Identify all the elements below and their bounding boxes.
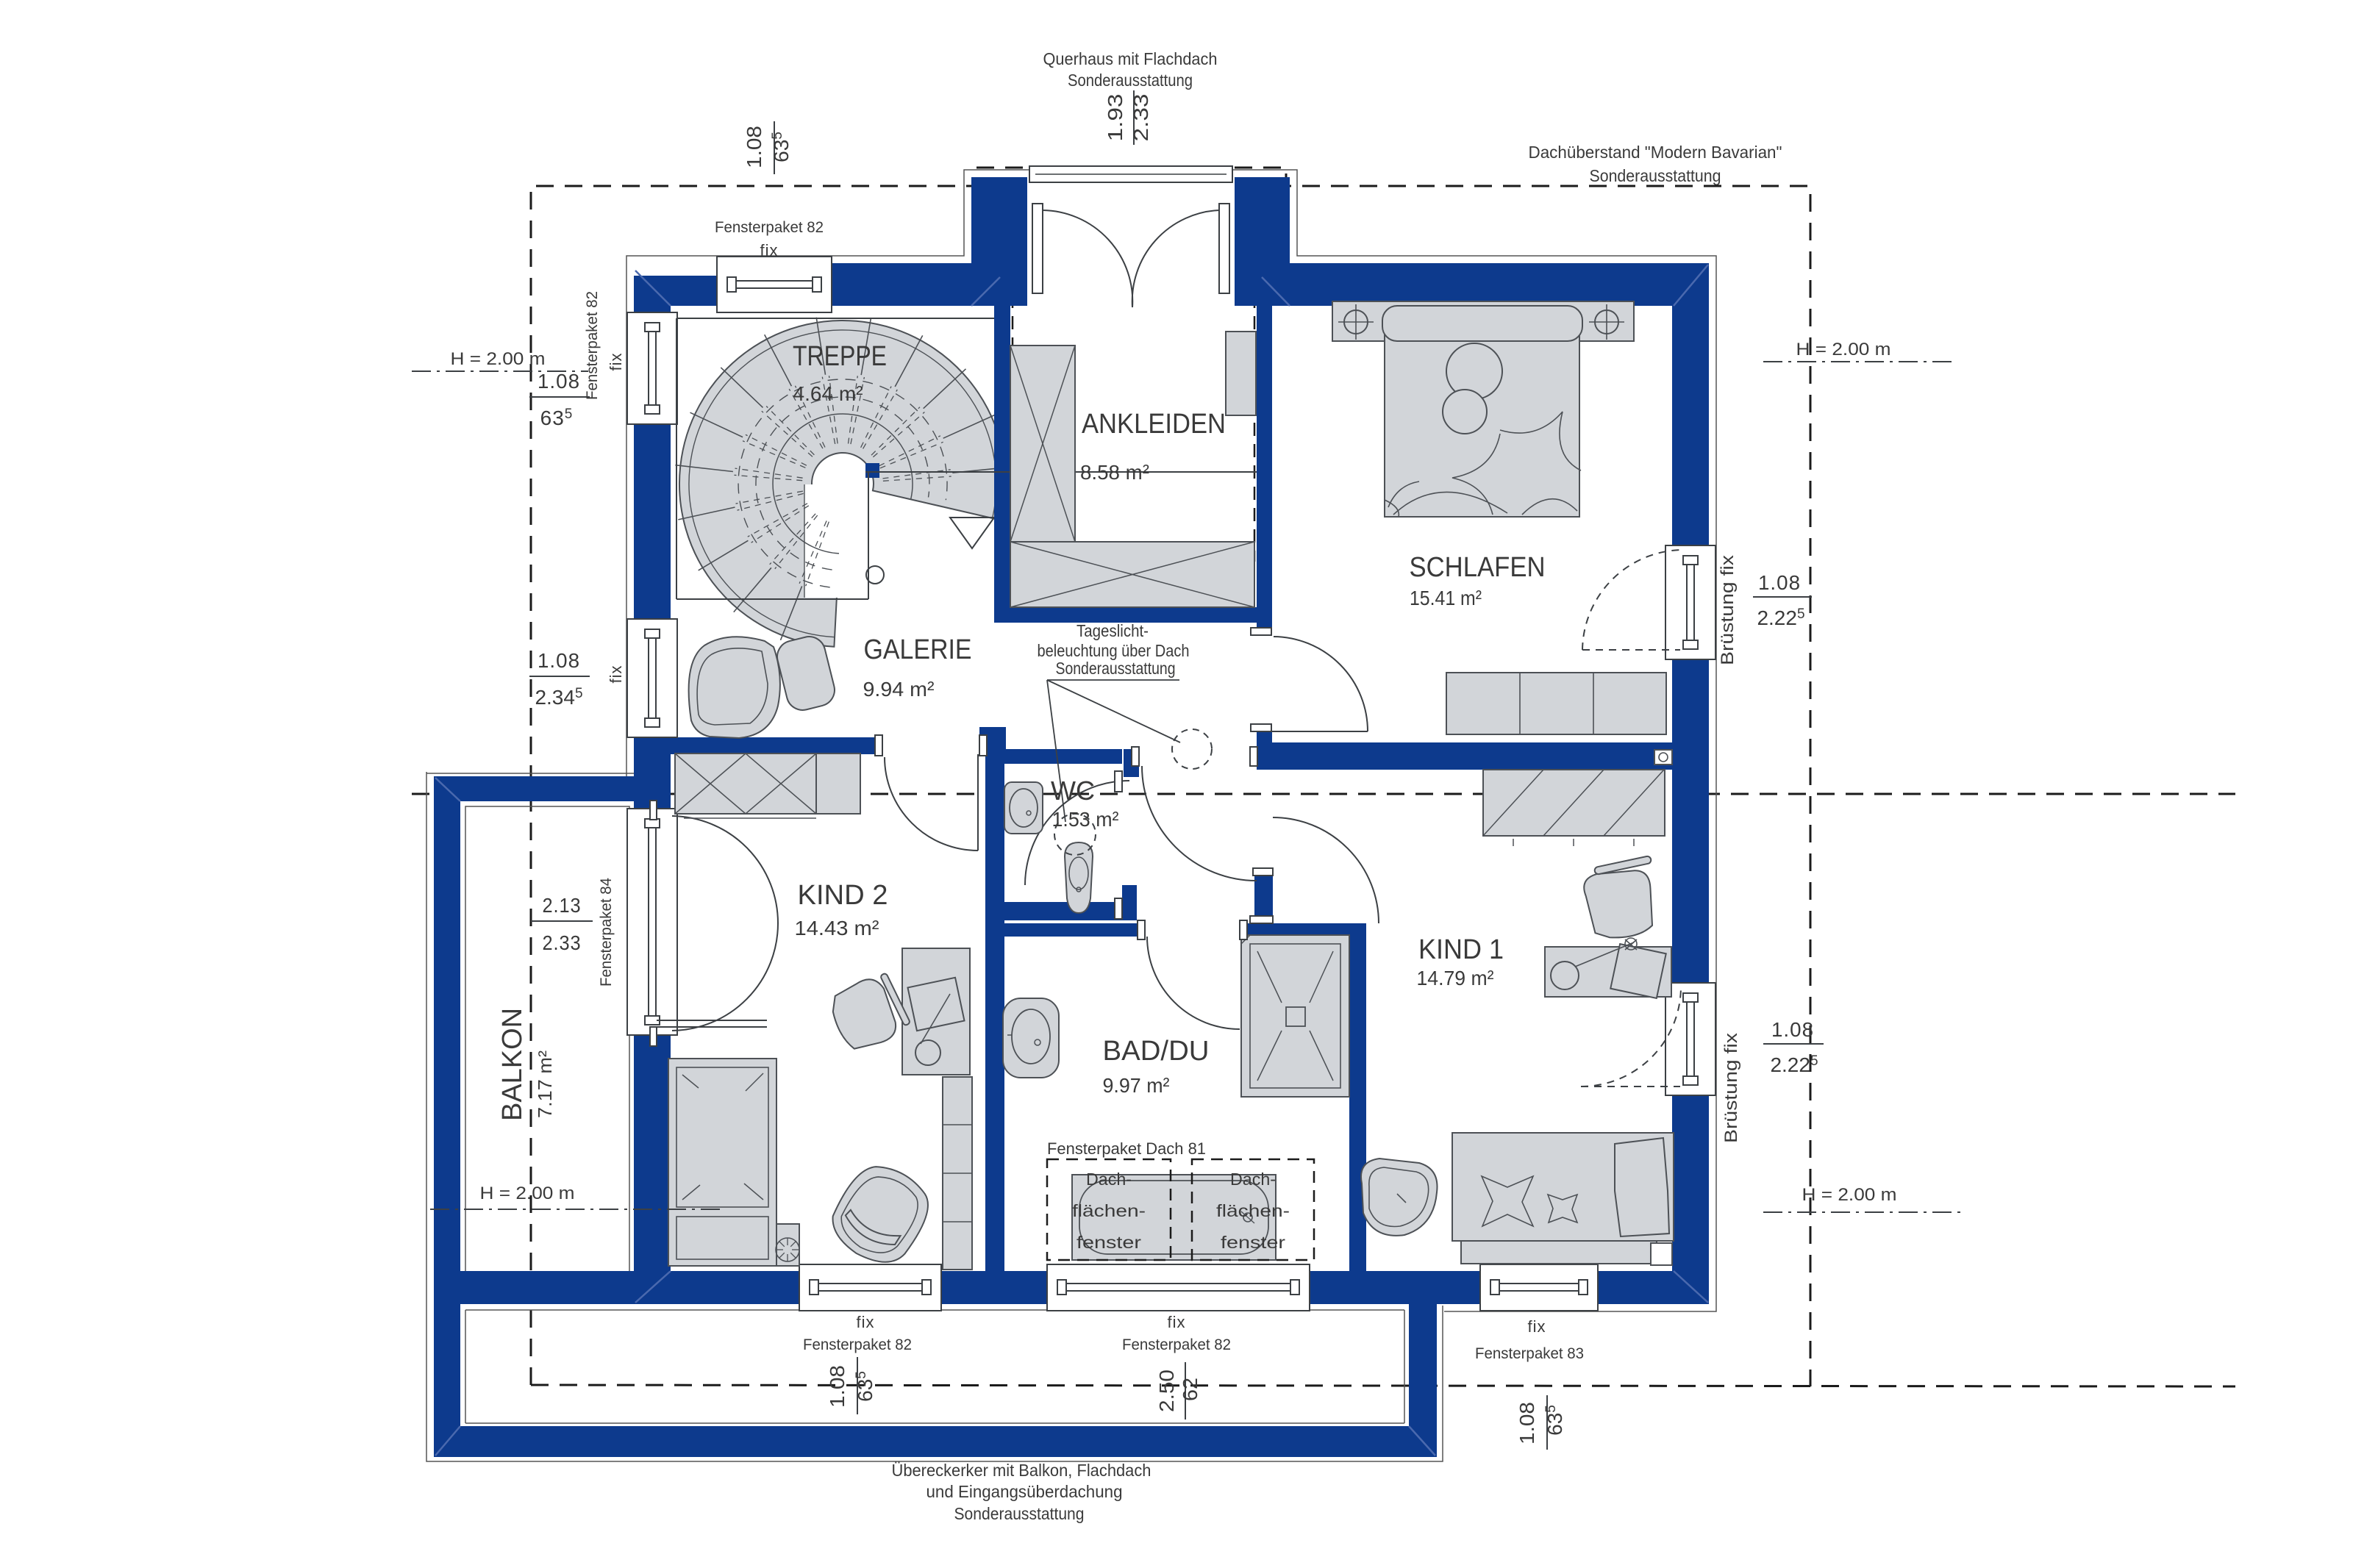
svg-text:fenster: fenster bbox=[1076, 1233, 1141, 1252]
svg-text:Fensterpaket 84: Fensterpaket 84 bbox=[598, 878, 615, 987]
svg-text:fix: fix bbox=[760, 241, 779, 259]
svg-text:SCHLAFEN: SCHLAFEN bbox=[1410, 552, 1546, 583]
svg-text:H = 2.00 m: H = 2.00 m bbox=[451, 349, 546, 369]
svg-text:Brüstung fix: Brüstung fix bbox=[1718, 555, 1738, 665]
svg-text:Übereckerker mit Balkon, Flach: Übereckerker mit Balkon, Flachdach bbox=[892, 1461, 1151, 1480]
svg-text:Dachüberstand "Modern Bavarian: Dachüberstand "Modern Bavarian" bbox=[1529, 143, 1782, 162]
svg-text:1.08: 1.08 bbox=[1758, 571, 1801, 594]
svg-text:1.08: 1.08 bbox=[538, 370, 580, 393]
svg-text:GALERIE: GALERIE bbox=[864, 634, 972, 665]
svg-text:WC: WC bbox=[1051, 776, 1095, 806]
svg-text:62: 62 bbox=[1179, 1378, 1202, 1401]
svg-text:fix: fix bbox=[607, 353, 625, 371]
svg-text:flächen-: flächen- bbox=[1072, 1201, 1146, 1220]
svg-text:1.08: 1.08 bbox=[826, 1365, 849, 1408]
svg-text:Tageslicht-: Tageslicht- bbox=[1076, 621, 1149, 640]
svg-text:1.93: 1.93 bbox=[1104, 94, 1126, 142]
svg-text:7.17 m²: 7.17 m² bbox=[534, 1050, 556, 1118]
svg-text:ANKLEIDEN: ANKLEIDEN bbox=[1082, 409, 1226, 440]
svg-text:Fensterpaket 82: Fensterpaket 82 bbox=[715, 219, 824, 236]
svg-text:1.08: 1.08 bbox=[1515, 1402, 1538, 1445]
svg-text:Dach-: Dach- bbox=[1230, 1170, 1276, 1189]
svg-text:fix: fix bbox=[1528, 1317, 1546, 1336]
svg-text:Fensterpaket 83: Fensterpaket 83 bbox=[1475, 1345, 1584, 1362]
svg-text:1.08: 1.08 bbox=[1771, 1018, 1814, 1041]
svg-text:4.64 m²: 4.64 m² bbox=[793, 382, 863, 405]
svg-text:8.58 m²: 8.58 m² bbox=[1080, 461, 1149, 484]
svg-text:2.33: 2.33 bbox=[1129, 94, 1152, 142]
svg-text:Sonderausstattung: Sonderausstattung bbox=[1590, 166, 1721, 185]
svg-text:Sonderausstattung: Sonderausstattung bbox=[1068, 71, 1193, 90]
svg-text:15.41 m²: 15.41 m² bbox=[1410, 587, 1482, 609]
svg-text:fenster: fenster bbox=[1221, 1233, 1285, 1252]
svg-text:und Eingangsüberdachung: und Eingangsüberdachung bbox=[926, 1482, 1123, 1501]
svg-text:Dach-: Dach- bbox=[1086, 1170, 1132, 1189]
svg-text:fix: fix bbox=[857, 1313, 875, 1331]
svg-text:2.50: 2.50 bbox=[1155, 1370, 1178, 1412]
svg-text:Fensterpaket Dach 81: Fensterpaket Dach 81 bbox=[1047, 1139, 1206, 1158]
svg-text:BALKON: BALKON bbox=[497, 1008, 528, 1121]
svg-text:14.43 m²: 14.43 m² bbox=[795, 917, 879, 939]
svg-text:H = 2.00 m: H = 2.00 m bbox=[480, 1184, 575, 1203]
svg-text:Fensterpaket 82: Fensterpaket 82 bbox=[803, 1336, 912, 1353]
svg-text:Fensterpaket 82: Fensterpaket 82 bbox=[584, 291, 601, 400]
svg-text:beleuchtung über Dach: beleuchtung über Dach bbox=[1038, 641, 1190, 660]
svg-text:9.94 m²: 9.94 m² bbox=[863, 678, 935, 701]
svg-text:1.08: 1.08 bbox=[743, 126, 765, 168]
svg-text:BAD/DU: BAD/DU bbox=[1103, 1036, 1210, 1067]
svg-text:flächen-: flächen- bbox=[1216, 1201, 1290, 1220]
svg-text:Fensterpaket 82: Fensterpaket 82 bbox=[1122, 1336, 1231, 1353]
svg-text:TREPPE: TREPPE bbox=[793, 341, 887, 372]
svg-text:fix: fix bbox=[607, 665, 625, 684]
svg-text:1.08: 1.08 bbox=[538, 649, 580, 672]
svg-text:Brüstung fix: Brüstung fix bbox=[1721, 1033, 1741, 1143]
svg-text:H = 2.00 m: H = 2.00 m bbox=[1796, 340, 1891, 359]
svg-text:14.79 m²: 14.79 m² bbox=[1417, 967, 1494, 989]
svg-text:1.53 m²: 1.53 m² bbox=[1052, 808, 1119, 831]
svg-text:9.97 m²: 9.97 m² bbox=[1103, 1074, 1170, 1097]
svg-text:KIND 2: KIND 2 bbox=[798, 880, 888, 911]
svg-text:Sonderausstattung: Sonderausstattung bbox=[1056, 659, 1176, 678]
svg-text:Sonderausstattung: Sonderausstattung bbox=[954, 1504, 1085, 1523]
svg-text:2.33: 2.33 bbox=[543, 931, 582, 954]
svg-text:H = 2.00 m: H = 2.00 m bbox=[1802, 1185, 1897, 1205]
svg-text:2.13: 2.13 bbox=[543, 894, 582, 917]
svg-text:fix: fix bbox=[1168, 1313, 1186, 1331]
svg-text:KIND 1: KIND 1 bbox=[1418, 934, 1504, 965]
svg-text:Querhaus mit Flachdach: Querhaus mit Flachdach bbox=[1043, 49, 1218, 68]
